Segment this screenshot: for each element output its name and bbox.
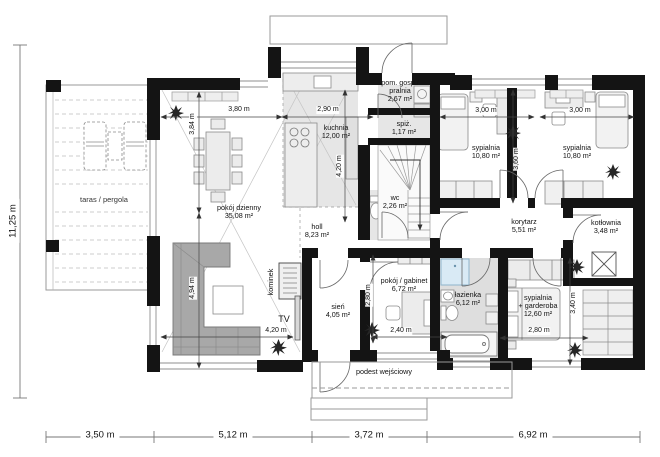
staircase [378, 145, 430, 240]
sink-icon [441, 290, 454, 302]
room-label-spiz: spiż.1,17 m² [392, 120, 416, 136]
room-label-lazienka: łazienka6,12 m² [455, 291, 481, 307]
dim-living-lower-v: 4,94 m [189, 276, 197, 299]
coffee-table [213, 286, 243, 314]
room-label-kotlownia: kotłownia3,48 m² [591, 219, 621, 235]
roof-canopy [270, 16, 447, 44]
terrace-pergola [46, 80, 157, 290]
tv-icon [295, 296, 300, 340]
dim-living-left-v: 3,84 m [189, 112, 197, 135]
room-label-pom-gosp-pralnia: pom. gosp./pralnia2,67 m² [381, 79, 419, 103]
room-label-sien: sień4,05 m² [326, 303, 350, 319]
room-label-sypialnia-1: sypialnia10,80 m² [472, 144, 500, 160]
room-label-pokoj-dzienny: pokój dzienny35,08 m² [217, 204, 261, 220]
room-label-holl: holl8,23 m² [305, 223, 329, 239]
fireplace-label: kominek [267, 269, 275, 296]
dim-bottom-2: 5,12 m [213, 431, 252, 442]
fireplace-icon [279, 263, 301, 299]
dim-living-bottom: 4,20 m [264, 327, 287, 335]
dim-bedroom3: 2,80 m [527, 327, 550, 335]
room-label-sypialnia-garderoba: sypialnia+ garderoba12,60 m² [519, 294, 558, 318]
room-label-wc: wc2,26 m² [383, 194, 407, 210]
dim-bedrooms-v: 3,60 m [513, 147, 521, 170]
dim-bedroom2: 3,00 m [568, 107, 591, 115]
dim-bedroom1: 3,00 m [474, 107, 497, 115]
room-label-kuchnia: kuchnia12,00 m² [322, 124, 350, 140]
room-label-korytarz: korytarz5,51 m² [511, 218, 537, 234]
room-label-sypialnia-2: sypialnia10,80 m² [563, 144, 591, 160]
dim-kitchen-top: 2,90 m [316, 106, 339, 114]
toilet-icon [441, 306, 458, 321]
room-label-taras-pergola: taras / pergola [80, 196, 128, 204]
dim-overall-height: 11,25 m [9, 199, 20, 243]
office-furniture [386, 256, 434, 334]
entry-platform-label: podest wejściowy [356, 368, 412, 376]
dim-living-top: 3,80 m [227, 106, 250, 114]
dim-bottom-1: 3,50 m [80, 431, 119, 442]
wardrobe-shelves [583, 290, 633, 355]
dim-kitchen-v: 4,20 m [336, 154, 344, 177]
dim-bottom-3: 3,72 m [349, 431, 388, 442]
dim-bottom-4: 6,92 m [513, 431, 552, 442]
floor-plan: pokój dzienny35,08 m² kuchnia12,00 m² ho… [0, 0, 660, 457]
room-label-pokoj-gabinet: pokój / gabinet6,72 m² [381, 277, 428, 293]
tv-label: TV [278, 314, 290, 324]
kitchen-island [285, 123, 317, 207]
bedroom-radiators [475, 90, 583, 98]
boiler-icon [592, 252, 616, 276]
floor-plan-drawing [0, 0, 660, 457]
dim-bedroom3-v: 3,40 m [570, 291, 578, 314]
dim-office-v: 2,80 m [365, 283, 373, 306]
radiator-living [172, 92, 238, 101]
shower-icon [441, 259, 469, 285]
dining-table [194, 119, 242, 202]
dim-office-bottom: 2,40 m [389, 327, 412, 335]
